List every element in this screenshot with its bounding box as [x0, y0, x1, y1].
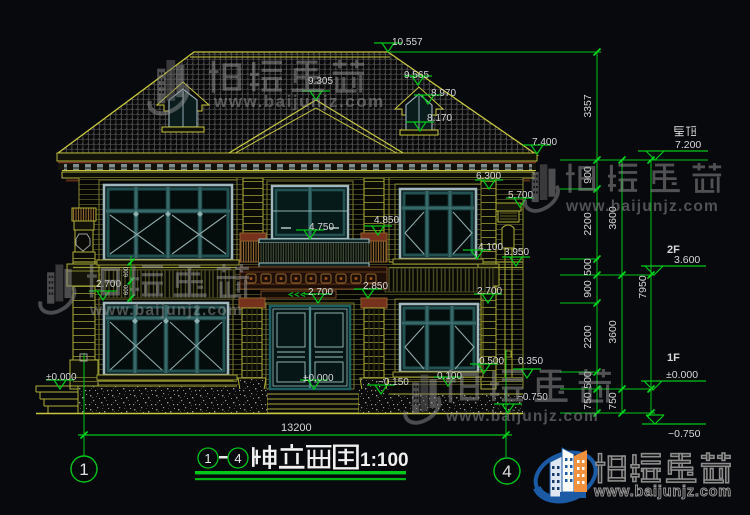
svg-text:−0.150: −0.150	[378, 377, 409, 388]
svg-text:±0.000: ±0.000	[303, 373, 334, 384]
svg-text:0.500: 0.500	[479, 356, 504, 367]
svg-text:1: 1	[79, 460, 88, 479]
svg-text:5.700: 5.700	[508, 190, 533, 201]
svg-text:1:100: 1:100	[360, 450, 409, 471]
svg-text:1: 1	[204, 451, 211, 466]
svg-text:600: 600	[124, 284, 130, 295]
svg-text:3600: 3600	[607, 320, 619, 344]
svg-text:900: 900	[582, 280, 594, 298]
svg-text:1F: 1F	[667, 352, 680, 364]
svg-text:www.baijunjz.com: www.baijunjz.com	[565, 198, 719, 215]
svg-text:−0.750: −0.750	[668, 428, 701, 440]
svg-text:500: 500	[582, 258, 594, 276]
svg-text:2.850: 2.850	[363, 281, 388, 292]
svg-text:www.baijunjz.com: www.baijunjz.com	[213, 92, 385, 111]
svg-text:2.700: 2.700	[477, 286, 502, 297]
svg-text:4.850: 4.850	[374, 215, 399, 226]
svg-text:±0.000: ±0.000	[46, 372, 77, 383]
svg-text:0.350: 0.350	[518, 356, 543, 367]
svg-text:4: 4	[234, 451, 241, 466]
svg-text:7950: 7950	[637, 275, 649, 299]
svg-text:7.200: 7.200	[675, 139, 701, 151]
svg-text:4: 4	[502, 462, 511, 481]
svg-text:6.300: 6.300	[476, 171, 501, 182]
svg-text:3.600: 3.600	[674, 254, 700, 266]
svg-text:9.565: 9.565	[404, 70, 429, 81]
svg-text:2200: 2200	[582, 212, 594, 236]
svg-text:4.100: 4.100	[478, 242, 503, 253]
svg-text:13200: 13200	[281, 422, 312, 434]
svg-text:4.750: 4.750	[309, 222, 334, 233]
svg-text:±0.000: ±0.000	[666, 369, 698, 381]
svg-text:3357: 3357	[582, 94, 594, 118]
svg-text:7.400: 7.400	[532, 137, 557, 148]
svg-text:www.baijunjz.com: www.baijunjz.com	[445, 408, 599, 425]
svg-text:www.baijunjz.com: www.baijunjz.com	[593, 484, 732, 500]
svg-text:600: 600	[124, 266, 130, 277]
svg-text:3.950: 3.950	[504, 247, 529, 258]
svg-text:10.557: 10.557	[392, 37, 423, 48]
svg-text:2.700: 2.700	[308, 287, 333, 298]
svg-text:2200: 2200	[582, 325, 594, 349]
svg-text:www.baijunjz.com: www.baijunjz.com	[89, 302, 243, 319]
svg-text:8.170: 8.170	[427, 113, 452, 124]
svg-text:8.970: 8.970	[431, 88, 456, 99]
